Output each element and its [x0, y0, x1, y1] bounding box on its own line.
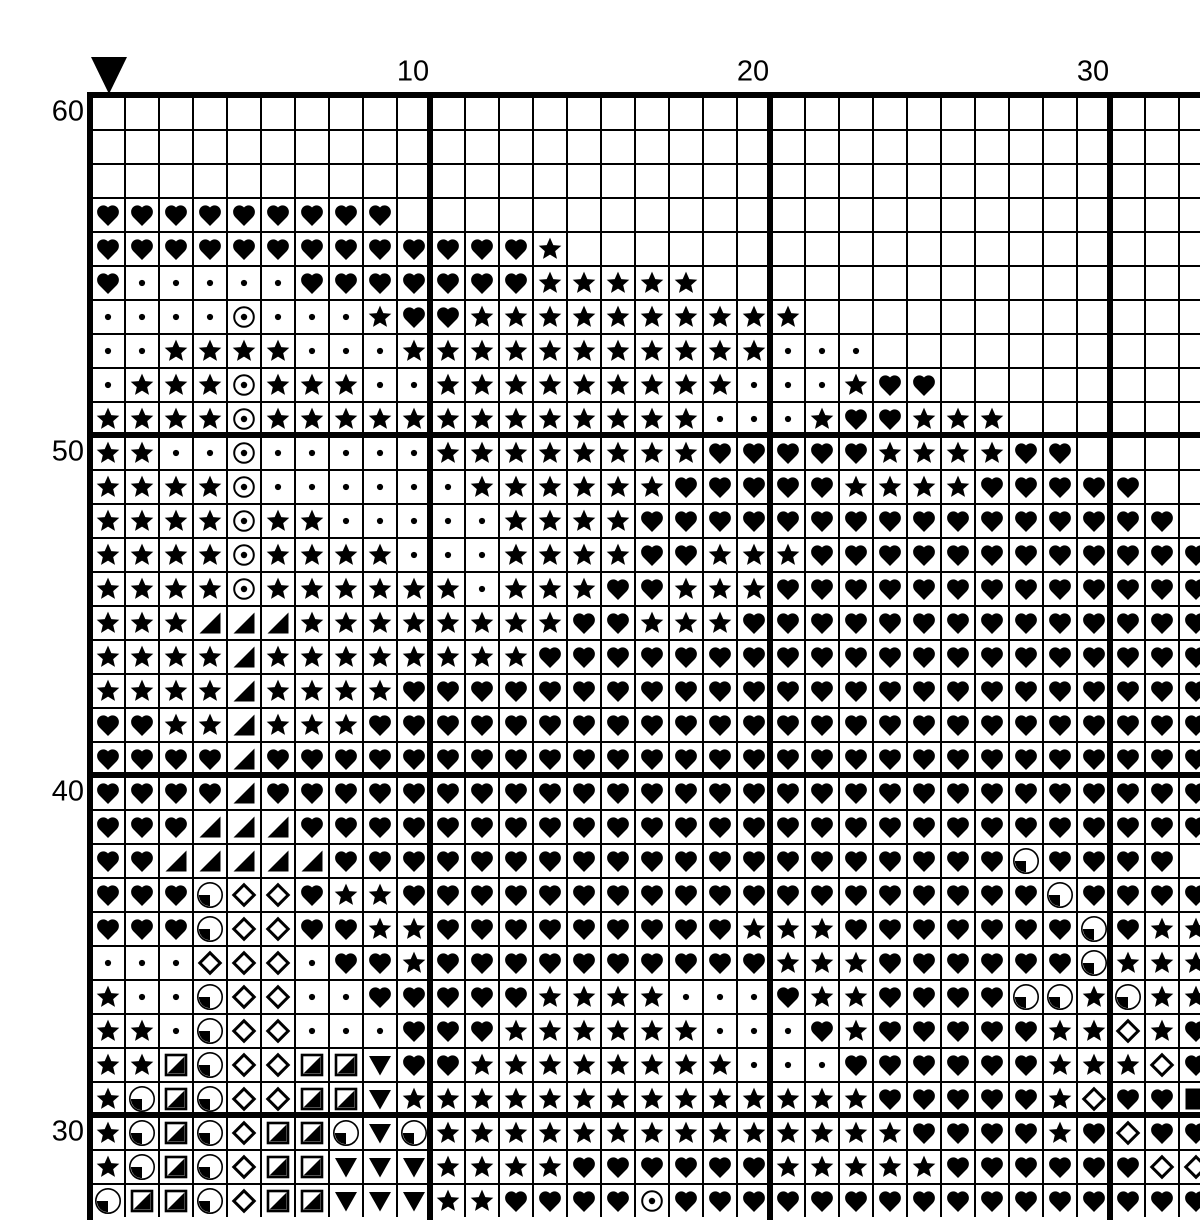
filled-star-icon — [468, 609, 496, 637]
filled-heart-icon — [808, 779, 836, 807]
small-dot-icon — [400, 541, 428, 569]
grid-cell — [600, 741, 634, 775]
grid-cell — [328, 707, 362, 741]
filled-heart-icon — [672, 711, 700, 739]
grid-cell — [668, 367, 702, 401]
grid-cell — [736, 809, 770, 843]
grid-cell — [430, 503, 464, 537]
grid-cell — [872, 877, 906, 911]
filled-star-icon — [978, 439, 1006, 467]
grid-cell — [770, 469, 804, 503]
column-number-label: 20 — [737, 58, 769, 87]
filled-heart-icon — [978, 1017, 1006, 1045]
grid-cell — [226, 707, 260, 741]
filled-star-icon — [672, 609, 700, 637]
grid-cell — [804, 571, 838, 605]
open-diamond-icon — [230, 1119, 258, 1147]
filled-heart-icon — [1080, 677, 1108, 705]
filled-star-icon — [536, 541, 564, 569]
grid-cell — [838, 333, 872, 367]
grid-cell — [702, 333, 736, 367]
grid-cell — [396, 435, 430, 469]
grid-cell — [1110, 503, 1144, 537]
circle-lower-left-quadrant-filled-icon — [332, 1119, 360, 1147]
square-lower-right-half-filled-icon — [264, 1187, 292, 1215]
filled-star-icon — [638, 473, 666, 501]
filled-star-icon — [536, 439, 564, 467]
filled-heart-icon — [1114, 1085, 1142, 1113]
grid-cell — [906, 639, 940, 673]
filled-heart-icon — [434, 779, 462, 807]
filled-star-icon — [128, 439, 156, 467]
grid-cell — [940, 571, 974, 605]
grid-cell — [192, 1149, 226, 1183]
filled-heart-icon — [570, 711, 598, 739]
grid-cell — [90, 333, 124, 367]
grid-cell — [294, 1047, 328, 1081]
grid-cell — [974, 911, 1008, 945]
grid-cell — [226, 299, 260, 333]
grid-cell — [736, 843, 770, 877]
grid-cell — [294, 537, 328, 571]
filled-star-icon — [536, 405, 564, 433]
filled-heart-icon — [468, 915, 496, 943]
grid-cell — [600, 945, 634, 979]
filled-heart-icon — [570, 745, 598, 773]
small-dot-icon — [740, 371, 768, 399]
grid-cell — [872, 1183, 906, 1217]
grid-cell — [430, 401, 464, 435]
grid-cell — [906, 537, 940, 571]
filled-heart-icon — [944, 847, 972, 875]
grid-cell — [600, 605, 634, 639]
filled-star-icon — [638, 439, 666, 467]
grid-cell — [872, 503, 906, 537]
filled-star-icon — [502, 473, 530, 501]
grid-cell — [872, 911, 906, 945]
grid-cell — [838, 945, 872, 979]
filled-heart-icon — [196, 235, 224, 263]
grid-cell — [498, 333, 532, 367]
grid-cell — [634, 537, 668, 571]
filled-heart-icon — [400, 269, 428, 297]
grid-cell — [532, 843, 566, 877]
grid-cell — [974, 401, 1008, 435]
grid-cell — [1178, 673, 1200, 707]
filled-heart-icon — [332, 745, 360, 773]
grid-cell — [396, 367, 430, 401]
filled-heart-icon — [1012, 745, 1040, 773]
grid-cell — [396, 1047, 430, 1081]
grid-cell — [1110, 571, 1144, 605]
filled-heart-icon — [604, 949, 632, 977]
grid-cell — [192, 979, 226, 1013]
filled-heart-icon — [978, 1051, 1006, 1079]
filled-star-icon — [604, 439, 632, 467]
grid-cell — [226, 673, 260, 707]
small-dot-icon — [332, 337, 360, 365]
grid-cell — [600, 571, 634, 605]
small-dot-icon — [740, 983, 768, 1011]
grid-cell — [124, 1081, 158, 1115]
grid-cell — [668, 775, 702, 809]
grid-cell — [158, 707, 192, 741]
small-dot-icon — [468, 507, 496, 535]
filled-heart-icon — [434, 303, 462, 331]
grid-cell — [770, 503, 804, 537]
filled-heart-icon — [1114, 609, 1142, 637]
small-dot-icon — [366, 337, 394, 365]
filled-heart-icon — [1012, 473, 1040, 501]
grid-cell — [226, 333, 260, 367]
grid-cell — [634, 435, 668, 469]
row-number-label: 60 — [52, 98, 84, 127]
grid-cell — [226, 1047, 260, 1081]
filled-heart-icon — [740, 881, 768, 909]
filled-star-icon — [366, 643, 394, 671]
filled-star-icon — [774, 915, 802, 943]
grid-cell — [906, 1183, 940, 1217]
filled-heart-icon — [706, 847, 734, 875]
grid-cell — [940, 775, 974, 809]
grid-cell — [1178, 877, 1200, 911]
filled-star-icon — [1114, 949, 1142, 977]
small-dot-icon — [366, 507, 394, 535]
grid-cell — [192, 1081, 226, 1115]
grid-cell — [226, 639, 260, 673]
grid-cell — [1042, 1081, 1076, 1115]
filled-star-icon — [94, 1153, 122, 1181]
grid-cell — [124, 1115, 158, 1149]
grid-cell — [226, 843, 260, 877]
filled-heart-icon — [1012, 1153, 1040, 1181]
filled-heart-icon — [876, 779, 904, 807]
grid-cell — [90, 979, 124, 1013]
grid-cell — [566, 265, 600, 299]
small-dot-icon — [94, 371, 122, 399]
grid-cell — [1042, 1183, 1076, 1217]
grid-cell — [974, 775, 1008, 809]
filled-heart-icon — [808, 507, 836, 535]
filled-heart-icon — [434, 1051, 462, 1079]
filled-heart-icon — [672, 541, 700, 569]
small-dot-icon — [774, 1051, 802, 1079]
grid-cell — [328, 605, 362, 639]
small-dot-icon — [740, 1051, 768, 1079]
grid-cell — [940, 605, 974, 639]
circle-lower-left-quadrant-filled-icon — [1012, 983, 1040, 1011]
grid-cell — [294, 809, 328, 843]
filled-star-icon — [808, 1085, 836, 1113]
filled-heart-icon — [1012, 643, 1040, 671]
grid-cell — [600, 673, 634, 707]
grid-cell — [124, 503, 158, 537]
grid-cell — [294, 1013, 328, 1047]
grid-cell — [90, 911, 124, 945]
filled-star-icon — [196, 575, 224, 603]
grid-cell — [124, 401, 158, 435]
filled-heart-icon — [570, 779, 598, 807]
grid-cell — [974, 1149, 1008, 1183]
grid-cell — [498, 503, 532, 537]
grid-cell — [600, 877, 634, 911]
grid-cell — [192, 639, 226, 673]
filled-star-icon — [468, 1085, 496, 1113]
filled-heart-icon — [196, 201, 224, 229]
grid-cell — [634, 639, 668, 673]
grid-cell — [294, 469, 328, 503]
grid-cell — [668, 401, 702, 435]
filled-heart-icon — [774, 847, 802, 875]
filled-heart-icon — [876, 1085, 904, 1113]
circle-lower-left-quadrant-filled-icon — [1046, 881, 1074, 909]
grid-cell — [906, 1149, 940, 1183]
filled-star-icon — [706, 1119, 734, 1147]
small-dot-icon — [332, 983, 360, 1011]
grid-cell — [1076, 605, 1110, 639]
grid-cell — [906, 843, 940, 877]
filled-star-icon — [706, 1051, 734, 1079]
grid-cell — [838, 707, 872, 741]
grid-cell — [396, 469, 430, 503]
filled-star-icon — [740, 337, 768, 365]
grid-cell — [1076, 877, 1110, 911]
grid-cell — [430, 367, 464, 401]
grid-cell — [260, 707, 294, 741]
grid-cell — [532, 265, 566, 299]
filled-heart-icon — [706, 677, 734, 705]
filled-down-triangle-icon — [332, 1187, 360, 1215]
grid-cell — [396, 401, 430, 435]
filled-heart-icon — [808, 541, 836, 569]
filled-star-icon — [808, 1119, 836, 1147]
filled-star-icon — [434, 609, 462, 637]
filled-star-icon — [808, 1153, 836, 1181]
grid-cell — [1042, 1149, 1076, 1183]
grid-cell — [736, 1183, 770, 1217]
open-diamond-icon — [264, 983, 292, 1011]
grid-cell — [294, 605, 328, 639]
circle-lower-left-quadrant-filled-icon — [128, 1119, 156, 1147]
filled-heart-icon — [1080, 1153, 1108, 1181]
small-dot-icon — [332, 439, 360, 467]
filled-heart-icon — [638, 779, 666, 807]
filled-star-icon — [706, 371, 734, 399]
grid-cell — [362, 435, 396, 469]
filled-heart-icon — [570, 881, 598, 909]
grid-cell — [906, 877, 940, 911]
open-diamond-icon — [230, 1051, 258, 1079]
grid-cell — [396, 265, 430, 299]
filled-star-icon — [468, 643, 496, 671]
circled-dot-icon — [230, 439, 258, 467]
grid-cell — [634, 673, 668, 707]
small-dot-icon — [196, 269, 224, 297]
grid-cell — [430, 231, 464, 265]
small-dot-icon — [366, 473, 394, 501]
filled-heart-icon — [468, 1017, 496, 1045]
circle-lower-left-quadrant-filled-icon — [1080, 949, 1108, 977]
grid-cell — [1178, 911, 1200, 945]
grid-cell — [430, 1115, 464, 1149]
filled-star-icon — [638, 609, 666, 637]
grid-cell — [362, 571, 396, 605]
grid-cell — [566, 1013, 600, 1047]
lower-right-filled-triangle-icon — [230, 609, 258, 637]
grid-cell — [294, 1081, 328, 1115]
grid-cell — [804, 877, 838, 911]
grid-cell — [158, 197, 192, 231]
filled-star-icon — [502, 337, 530, 365]
grid-cell — [838, 775, 872, 809]
grid-cell — [1042, 1115, 1076, 1149]
grid-cell — [124, 843, 158, 877]
grid-cell — [192, 1013, 226, 1047]
grid-cell — [532, 1081, 566, 1115]
filled-heart-icon — [910, 881, 938, 909]
filled-heart-icon — [944, 915, 972, 943]
filled-heart-icon — [434, 745, 462, 773]
grid-cell — [940, 1013, 974, 1047]
grid-cell — [1008, 911, 1042, 945]
grid-cell — [158, 639, 192, 673]
filled-heart-icon — [264, 745, 292, 773]
grid-cell — [1008, 1047, 1042, 1081]
grid-cell — [736, 741, 770, 775]
grid-cell — [260, 1115, 294, 1149]
grid-cell — [192, 843, 226, 877]
filled-star-icon — [94, 473, 122, 501]
grid-cell — [396, 605, 430, 639]
grid-cell — [940, 401, 974, 435]
filled-star-icon — [298, 677, 326, 705]
grid-cell — [90, 1081, 124, 1115]
circled-dot-icon — [230, 507, 258, 535]
grid-cell — [192, 197, 226, 231]
filled-star-icon — [570, 541, 598, 569]
grid-cell — [90, 537, 124, 571]
grid-cell — [600, 1149, 634, 1183]
filled-heart-icon — [468, 881, 496, 909]
small-dot-icon — [196, 303, 224, 331]
grid-cell — [532, 877, 566, 911]
filled-heart-icon — [978, 1119, 1006, 1147]
filled-heart-icon — [808, 575, 836, 603]
filled-heart-icon — [978, 915, 1006, 943]
grid-cell — [872, 1081, 906, 1115]
filled-star-icon — [128, 575, 156, 603]
filled-heart-icon — [638, 881, 666, 909]
grid-cell — [464, 843, 498, 877]
grid-cell — [532, 673, 566, 707]
filled-star-icon — [672, 269, 700, 297]
filled-heart-icon — [808, 711, 836, 739]
grid-cell — [804, 775, 838, 809]
filled-star-icon — [740, 1085, 768, 1113]
grid-cell — [872, 1047, 906, 1081]
grid-cell — [532, 979, 566, 1013]
filled-heart-icon — [808, 1017, 836, 1045]
grid-cell — [872, 1115, 906, 1149]
grid-cell — [328, 503, 362, 537]
grid-cell — [226, 605, 260, 639]
grid-cell — [226, 571, 260, 605]
filled-star-icon — [740, 541, 768, 569]
grid-cell — [566, 979, 600, 1013]
grid-cell — [736, 503, 770, 537]
filled-heart-icon — [774, 575, 802, 603]
grid-cell — [260, 1013, 294, 1047]
filled-heart-icon — [128, 847, 156, 875]
grid-cell — [1076, 469, 1110, 503]
grid-cell — [974, 877, 1008, 911]
filled-star-icon — [706, 1085, 734, 1113]
grid-cell — [770, 1183, 804, 1217]
grid-cell — [464, 1047, 498, 1081]
grid-cell — [430, 877, 464, 911]
grid-cell — [634, 571, 668, 605]
filled-heart-icon — [1182, 779, 1200, 807]
grid-cell — [702, 945, 736, 979]
filled-heart-icon — [604, 915, 632, 943]
filled-heart-icon — [434, 881, 462, 909]
grid-cell — [294, 571, 328, 605]
filled-star-icon — [128, 405, 156, 433]
filled-heart-icon — [1114, 881, 1142, 909]
grid-cell — [328, 1149, 362, 1183]
grid-cell — [702, 809, 736, 843]
filled-star-icon — [944, 473, 972, 501]
filled-star-icon — [230, 337, 258, 365]
grid-cell — [1042, 1013, 1076, 1047]
lower-right-filled-triangle-icon — [264, 813, 292, 841]
grid-cell — [226, 537, 260, 571]
filled-star-icon — [740, 303, 768, 331]
grid-cell — [498, 809, 532, 843]
square-lower-right-half-filled-icon — [128, 1187, 156, 1215]
grid-cell — [158, 435, 192, 469]
filled-star-icon — [366, 677, 394, 705]
filled-heart-icon — [706, 915, 734, 943]
grid-cell — [1042, 843, 1076, 877]
filled-heart-icon — [162, 779, 190, 807]
filled-heart-icon — [366, 779, 394, 807]
filled-heart-icon — [876, 541, 904, 569]
grid-cell — [1076, 707, 1110, 741]
filled-star-icon — [1046, 1085, 1074, 1113]
filled-heart-icon — [672, 1153, 700, 1181]
filled-heart-icon — [332, 813, 360, 841]
filled-heart-icon — [1080, 541, 1108, 569]
grid-cell — [396, 537, 430, 571]
grid-cell — [668, 673, 702, 707]
filled-star-icon — [94, 1017, 122, 1045]
grid-cell — [226, 945, 260, 979]
square-lower-right-half-filled-icon — [298, 1051, 326, 1079]
filled-heart-icon — [94, 847, 122, 875]
filled-heart-icon — [604, 779, 632, 807]
filled-heart-icon — [536, 779, 564, 807]
grid-cell — [294, 401, 328, 435]
grid-cell — [940, 1183, 974, 1217]
filled-star-icon — [842, 1085, 870, 1113]
filled-heart-icon — [332, 779, 360, 807]
grid-cell — [498, 1149, 532, 1183]
grid-cell — [498, 979, 532, 1013]
grid-cell — [158, 571, 192, 605]
grid-cell — [634, 1149, 668, 1183]
filled-heart-icon — [808, 677, 836, 705]
